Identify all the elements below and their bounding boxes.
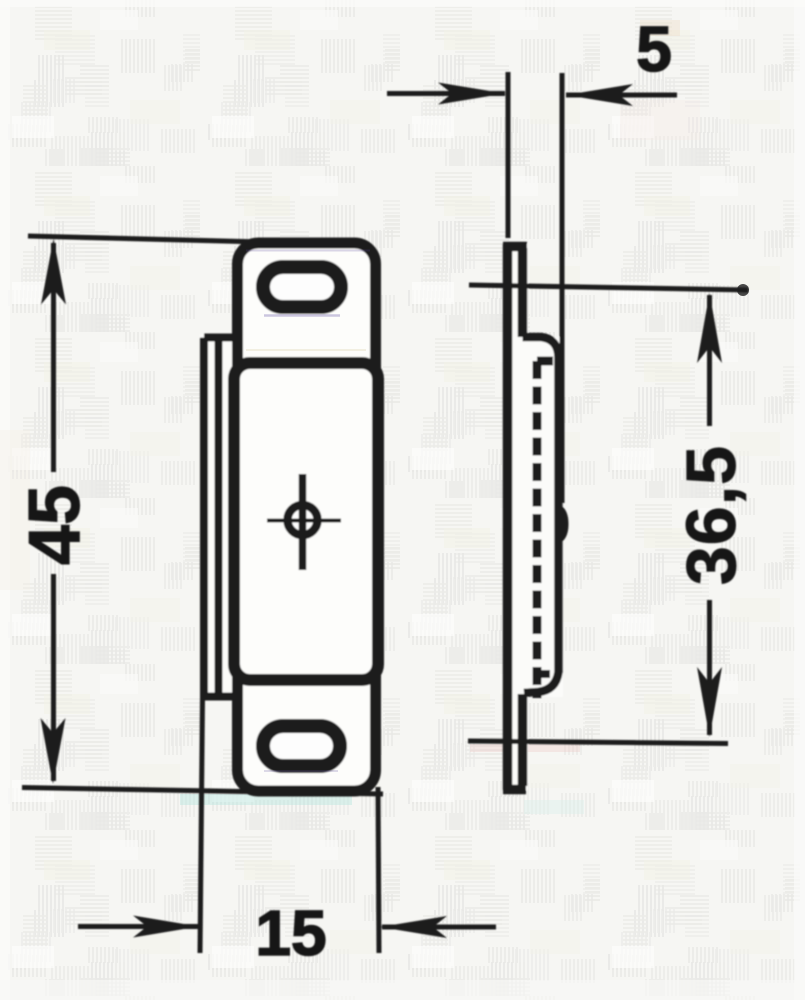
- svg-text:45: 45: [15, 485, 95, 565]
- svg-text:36,5: 36,5: [672, 445, 750, 585]
- svg-text:15: 15: [255, 897, 326, 969]
- svg-text:5: 5: [636, 13, 672, 85]
